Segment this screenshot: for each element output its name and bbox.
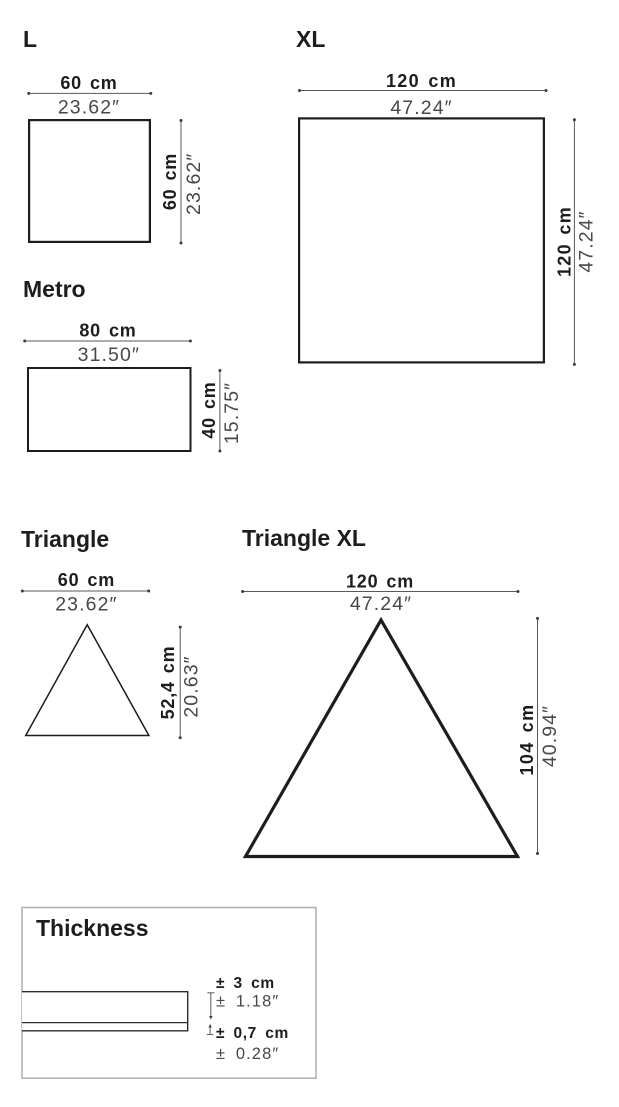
svg-text:23.62″: 23.62″ (58, 97, 120, 119)
svg-text:47.24″: 47.24″ (350, 593, 412, 615)
svg-text:20.63″: 20.63″ (181, 655, 203, 717)
svg-text:± 1.18″: ± 1.18″ (216, 993, 279, 1011)
svg-text:104 cm: 104 cm (517, 703, 537, 775)
svg-text:60 cm: 60 cm (58, 570, 115, 590)
svg-text:40.94″: 40.94″ (539, 705, 561, 767)
svg-text:Triangle XL: Triangle XL (242, 525, 366, 551)
svg-text:15.75″: 15.75″ (221, 382, 243, 444)
svg-text:47.24″: 47.24″ (576, 210, 598, 272)
svg-text:± 0,7 cm: ± 0,7 cm (216, 1025, 289, 1042)
svg-text:Triangle: Triangle (21, 526, 109, 552)
svg-text:± 3 cm: ± 3 cm (216, 975, 275, 992)
svg-text:120 cm: 120 cm (555, 206, 575, 277)
svg-text:Metro: Metro (23, 276, 86, 302)
svg-text:XL: XL (296, 26, 325, 52)
svg-text:52,4 cm: 52,4 cm (158, 646, 178, 720)
svg-text:23.62″: 23.62″ (183, 153, 205, 215)
svg-text:120 cm: 120 cm (386, 71, 457, 91)
svg-text:60 cm: 60 cm (60, 73, 117, 93)
svg-text:47.24″: 47.24″ (390, 97, 452, 119)
svg-text:23.62″: 23.62″ (55, 594, 117, 616)
svg-text:80 cm: 80 cm (79, 321, 136, 341)
svg-text:Thickness: Thickness (36, 915, 149, 941)
svg-text:40 cm: 40 cm (199, 381, 219, 438)
svg-text:60 cm: 60 cm (160, 153, 180, 210)
svg-text:120 cm: 120 cm (346, 572, 414, 592)
svg-text:31.50″: 31.50″ (78, 344, 140, 366)
svg-text:± 0.28″: ± 0.28″ (216, 1045, 279, 1063)
svg-text:L: L (23, 26, 37, 52)
